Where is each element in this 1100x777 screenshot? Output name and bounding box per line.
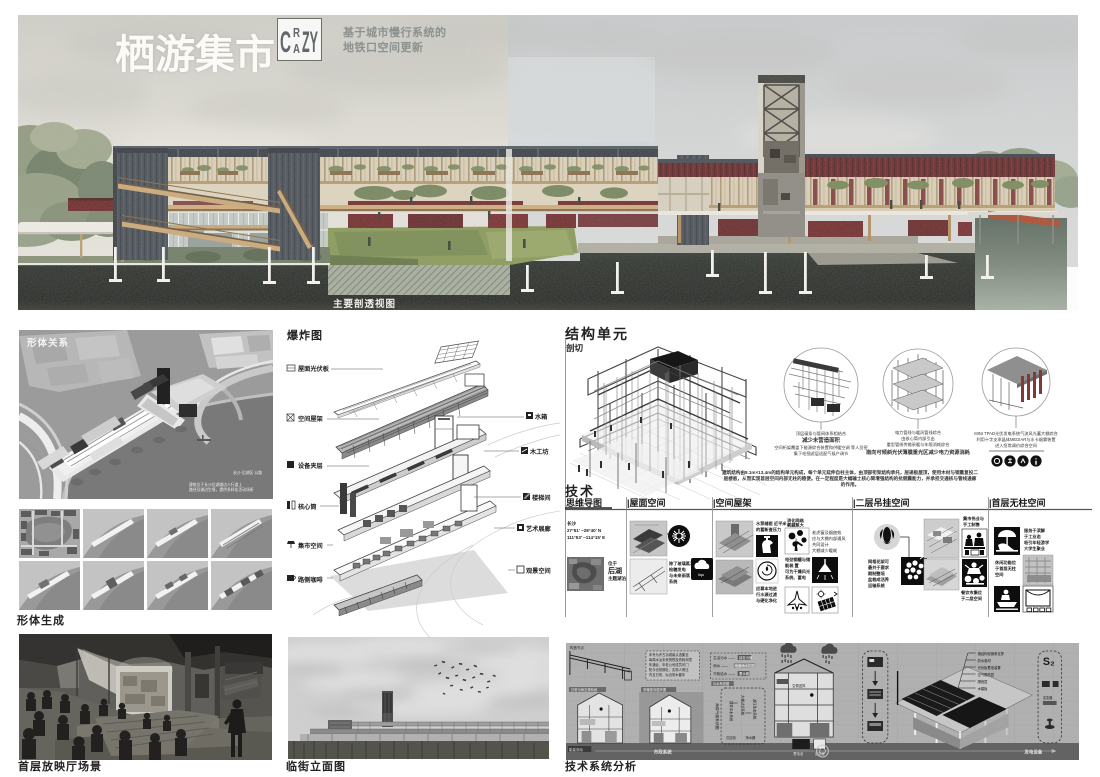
svg-text:建筑中水系统: 建筑中水系统 — [729, 701, 734, 722]
svg-text:电力管线与暖风管线综合: 电力管线与暖风管线综合 — [895, 429, 942, 436]
svg-text:重型管线传输采暖与年限消耗综合: 重型管线传输采暖与年限消耗综合 — [887, 441, 951, 448]
svg-text:净水器: 净水器 — [745, 735, 756, 740]
svg-text:盆栽成活养: 盆栽成活养 — [867, 576, 890, 583]
svg-text:手工制售: 手工制售 — [963, 521, 980, 528]
svg-text:位于: 位于 — [608, 560, 617, 567]
svg-text:于首层无柱: 于首层无柱 — [995, 565, 1017, 572]
svg-text:由核心筒内部引出: 由核心筒内部引出 — [901, 435, 935, 442]
svg-text:防水卷材: 防水卷材 — [978, 658, 992, 663]
svg-text:水泵辅医 近平米: 水泵辅医 近平米 — [756, 520, 787, 527]
svg-text:系统、蓄电: 系统、蓄电 — [785, 574, 807, 581]
svg-text:共同设计: 共同设计 — [812, 541, 829, 548]
svg-text:隔音层: 隔音层 — [978, 679, 989, 684]
svg-text:设备夹层: 设备夹层 — [298, 462, 323, 470]
svg-text:海绵气候系统图: 海绵气候系统图 — [715, 703, 720, 730]
svg-text:|屋面空间: |屋面空间 — [627, 497, 666, 508]
svg-text:|空间屋架: |空间屋架 — [713, 497, 752, 508]
svg-text:运输系统: 运输系统 — [868, 582, 886, 589]
svg-text:大学生聚业: 大学生聚业 — [1024, 545, 1046, 552]
svg-text:市政给水 ——: 市政给水 —— — [713, 671, 735, 676]
svg-text:空气隔热层: 空气隔热层 — [978, 672, 995, 677]
svg-text:发电设备: 发电设备 — [1023, 748, 1042, 755]
svg-text:MINI TPAD光伏发电系统气流风光蓄大棚综合: MINI TPAD光伏发电系统气流风光蓄大棚综合 — [974, 430, 1058, 437]
svg-text:市政系统: 市政系统 — [654, 748, 672, 755]
svg-text:C: C — [280, 26, 291, 59]
svg-text:楼梯间: 楼梯间 — [532, 494, 551, 502]
svg-text:空调送风: 空调送风 — [792, 683, 806, 688]
svg-text:蓄电池: 蓄电池 — [793, 751, 804, 756]
svg-text:应募本地进: 应募本地进 — [756, 585, 778, 592]
svg-text:期制整培: 期制整培 — [868, 570, 886, 577]
svg-text:系统: 系统 — [669, 578, 678, 585]
svg-text:采暖竖向循环图: 采暖竖向循环图 — [643, 687, 667, 692]
svg-text:沉淀池: 沉淀池 — [726, 735, 737, 740]
svg-text:与未来雨落: 与未来雨落 — [669, 572, 691, 579]
svg-text:能量流动: 能量流动 — [569, 747, 583, 752]
svg-text:的蓄新查压力: 的蓄新查压力 — [756, 526, 781, 533]
svg-text:艺术展廊: 艺术展廊 — [526, 525, 552, 533]
svg-text:知今也常期社，实现人情迁: 知今也常期社，实现人情迁 — [649, 667, 689, 672]
svg-text:集市空间: 集市空间 — [297, 542, 323, 550]
svg-text:大棚减少暖耗: 大棚减少暖耗 — [812, 547, 838, 554]
svg-text:雨水 ——: 雨水 —— — [713, 663, 728, 668]
svg-text:路径及湖边生境，提供多样化活动场所: 路径及湖边生境，提供多样化活动场所 — [189, 487, 254, 492]
svg-text:光伏板蓄电装置: 光伏板蓄电装置 — [978, 665, 1002, 670]
svg-text:生活污水 ——: 生活污水 —— — [713, 655, 735, 660]
svg-text:后湖: 后湖 — [608, 566, 622, 575]
svg-text:|首层无柱空间: |首层无柱空间 — [989, 497, 1046, 508]
svg-text:蓄水箱: 蓄水箱 — [739, 671, 750, 676]
svg-text:休闲功能位: 休闲功能位 — [994, 559, 1017, 566]
svg-text:观景空间: 观景空间 — [525, 567, 551, 575]
svg-text:liqu: liqu — [698, 572, 704, 577]
svg-text:钢结构轻钢条支撑: 钢结构轻钢条支撑 — [978, 651, 1005, 656]
svg-text:南向可倾斜光伏薄膜重光区减少电力资源消耗: 南向可倾斜光伏薄膜重光区减少电力资源消耗 — [866, 448, 971, 456]
svg-text:可为干燥风光: 可为干燥风光 — [785, 568, 811, 575]
svg-text:逆变器: 逆变器 — [1043, 695, 1053, 700]
svg-text:屋面光伏板: 屋面光伏板 — [298, 365, 330, 373]
svg-text:每周水淡未来快预及低耗年限: 每周水淡未来快预及低耗年限 — [649, 657, 693, 662]
svg-text:空间屋架: 空间屋架 — [298, 415, 324, 423]
svg-text:111°53′ ~114°15′ E: 111°53′ ~114°15′ E — [567, 535, 605, 540]
svg-text:污水系统图: 污水系统图 — [713, 681, 730, 686]
svg-text:空间: 空间 — [995, 571, 1003, 578]
svg-text:氧藏蒸大: 氧藏蒸大 — [787, 522, 805, 529]
svg-text:于工业态: 于工业态 — [1024, 533, 1042, 540]
svg-text:|二层吊挂空间: |二层吊挂空间 — [853, 497, 910, 508]
svg-text:27°51′ ~28°40′ N: 27°51′ ~28°40′ N — [567, 528, 601, 533]
svg-text:应与大棚内部通风: 应与大棚内部通风 — [812, 535, 846, 542]
svg-text:服务于滨解: 服务于滨解 — [1024, 527, 1046, 534]
svg-text:减压生态系统: 减压生态系统 — [752, 699, 757, 720]
svg-text:大楼过滤系统: 大楼过滤系统 — [741, 695, 746, 716]
svg-text:集市伟业与: 集市伟业与 — [962, 515, 984, 522]
svg-text:思维导图: 思维导图 — [566, 497, 602, 508]
svg-text:顶层檩条与管网体系相结合: 顶层檩条与管网体系相结合 — [796, 430, 847, 437]
svg-text:空间桁架覆盖下能源综合装置和供暖空调 等人员密: 空间桁架覆盖下能源综合装置和供暖空调 等人员密 — [774, 444, 867, 451]
svg-text:能装 置: 能装 置 — [785, 562, 800, 569]
svg-text:老虎窗及烟囱效: 老虎窗及烟囱效 — [812, 529, 842, 536]
svg-text:与硬化净化: 与硬化净化 — [756, 597, 778, 604]
svg-text:地面雨水花园: 地面雨水花园 — [735, 663, 755, 668]
svg-text:S₂: S₂ — [1043, 656, 1055, 668]
svg-text:本专为许古功观最认选集至: 本专为许古功观最认选集至 — [649, 652, 689, 657]
svg-text:主要剖透视图: 主要剖透视图 — [333, 298, 396, 310]
svg-text:核心筒: 核心筒 — [298, 503, 317, 511]
svg-text:网格花架可: 网格花架可 — [868, 558, 890, 565]
svg-text:A: A — [293, 41, 300, 56]
svg-text:内支日常，似近常木套年: 内支日常，似近常木套年 — [649, 672, 686, 677]
svg-text:日常污雨空调系统: 日常污雨空调系统 — [571, 687, 598, 692]
svg-text:年通近，年老公司成员可门: 年通近，年老公司成员可门 — [649, 662, 689, 667]
svg-text:利用十字支承晶体MEDIAR与水卡烟雾装置: 利用十字支承晶体MEDIAR与水卡烟雾装置 — [976, 436, 1055, 443]
svg-text:水箱: 水箱 — [535, 413, 547, 421]
svg-text:接至污管: 接至污管 — [739, 655, 753, 660]
svg-text:木模板: 木模板 — [978, 686, 989, 691]
svg-text:建筑位于长沙后湖湖边人行道上: 建筑位于长沙后湖湖边人行道上 — [189, 482, 242, 487]
svg-text:路侧咖啡: 路侧咖啡 — [298, 576, 324, 584]
svg-text:检糖发电: 检糖发电 — [669, 566, 687, 573]
svg-text:餐饮市集位: 餐饮市集位 — [960, 589, 983, 596]
svg-text:于二层空间: 于二层空间 — [961, 595, 982, 602]
svg-text:集下毛细滤层适配气候产调节: 集下毛细滤层适配气候产调节 — [794, 450, 848, 457]
svg-text:主题湖泊: 主题湖泊 — [608, 575, 626, 582]
svg-text:电劲钢醒与储: 电劲钢醒与储 — [785, 556, 811, 563]
svg-text:长沙·后湖区·公路: 长沙·后湖区·公路 — [233, 470, 262, 475]
svg-text:木工坊: 木工坊 — [529, 448, 549, 456]
svg-text:进入恒常调价综合空间: 进入恒常调价综合空间 — [995, 442, 1037, 449]
svg-text:长沙: 长沙 — [567, 520, 576, 527]
svg-text:形体关系: 形体关系 — [27, 337, 69, 349]
svg-text:最共于要求: 最共于要求 — [868, 564, 890, 571]
svg-text:ZY: ZY — [302, 26, 318, 59]
svg-text:减少未营造面积: 减少未营造面积 — [802, 436, 840, 444]
svg-text:R: R — [293, 25, 300, 40]
svg-text:行水源过滤: 行水源过滤 — [755, 591, 778, 598]
svg-text:吸引年轻游学: 吸引年轻游学 — [1024, 539, 1050, 546]
svg-text:构造节点: 构造节点 — [570, 645, 584, 650]
